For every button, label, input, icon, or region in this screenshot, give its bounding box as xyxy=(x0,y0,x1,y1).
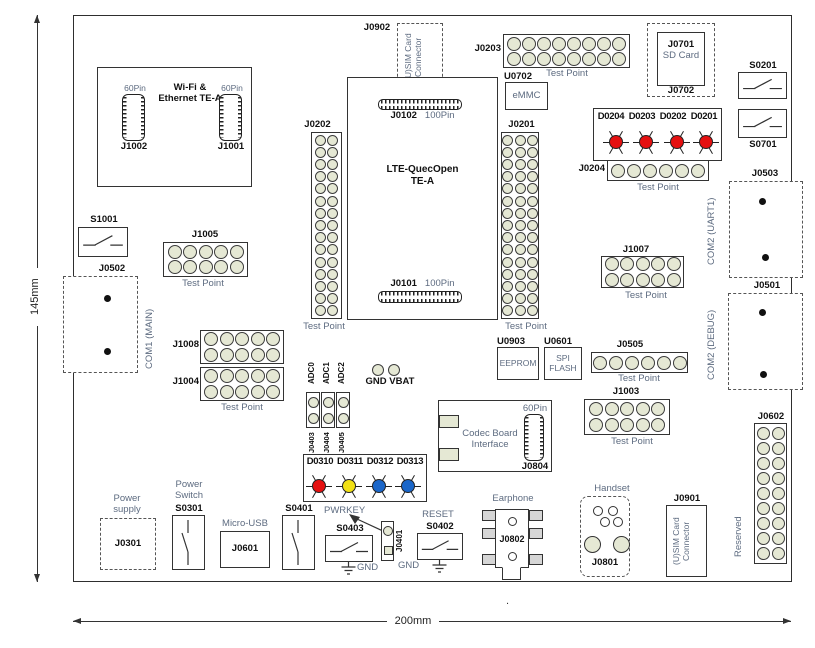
led-d0313 xyxy=(396,474,420,498)
pin-pad xyxy=(315,281,326,292)
spi-flash-name: SPI FLASH xyxy=(549,354,576,374)
pin-pad xyxy=(673,356,687,370)
label-j0702: J0702 xyxy=(657,86,705,97)
handset-hole xyxy=(608,506,618,516)
pin-pad xyxy=(651,418,665,432)
pin-pad xyxy=(515,257,526,268)
label-j0102: J0102 xyxy=(390,111,416,122)
pin-pad xyxy=(168,245,182,259)
pin-pad xyxy=(502,281,513,292)
label-adc0: ADC0 xyxy=(307,356,319,391)
label-j0503: J0503 xyxy=(743,169,787,180)
pin-pad xyxy=(757,502,770,515)
earphone-name: Earphone xyxy=(486,494,540,505)
pin-pad xyxy=(527,135,538,146)
led-d0203 xyxy=(634,130,658,154)
pin-pad xyxy=(667,257,681,271)
switch-symbol xyxy=(418,534,462,559)
com2-uart-name: COM2 (UART1) xyxy=(707,185,721,278)
led-d0204 xyxy=(604,130,628,154)
earphone-pad xyxy=(529,554,543,565)
label-j0202: J0202 xyxy=(295,120,340,131)
label-j0404: J0404 xyxy=(323,430,333,456)
pin-pad xyxy=(220,332,234,346)
handset-pad-left xyxy=(584,536,601,553)
dim-height-arrow-bottom xyxy=(34,574,40,582)
pin-pad xyxy=(567,37,581,51)
sd-card-name: SD Card xyxy=(658,51,704,62)
pin-pad xyxy=(183,260,197,274)
label-j0601: J0601 xyxy=(232,544,258,555)
codec-title: Codec Board Interface xyxy=(457,429,523,451)
label-j0505: J0505 xyxy=(608,340,652,351)
pin-pad xyxy=(502,183,513,194)
com2-uart-pin-top xyxy=(759,198,766,205)
switch-s0301 xyxy=(172,515,205,570)
header-j1008 xyxy=(200,330,284,364)
pin-pad xyxy=(515,208,526,219)
connector-j0101-icon xyxy=(378,291,462,303)
pin-pad xyxy=(507,37,521,51)
connector-j0102-icon xyxy=(378,99,462,110)
pin-pad xyxy=(527,159,538,170)
pin-pad xyxy=(204,348,218,362)
status-led-box: D0310 D0311 D0312 D0313 xyxy=(303,454,427,502)
pin-pad xyxy=(230,260,244,274)
pin-pad xyxy=(235,369,249,383)
connector-j0804-icon xyxy=(524,414,544,461)
pin-pad xyxy=(168,260,182,274)
pin-pad xyxy=(502,159,513,170)
label-d0313: D0313 xyxy=(395,457,425,468)
label-s0701: S0701 xyxy=(739,140,787,151)
label-pin100-bottom: 100Pin xyxy=(425,279,455,290)
pin-pad xyxy=(502,220,513,231)
pin-pad xyxy=(315,257,326,268)
pin-pad xyxy=(589,402,603,416)
switch-s1001 xyxy=(78,227,128,257)
pin-pad xyxy=(502,196,513,207)
header-j1007 xyxy=(601,256,684,288)
pin-pad xyxy=(502,135,513,146)
com1-pin-bottom xyxy=(104,348,111,355)
switch-s0401 xyxy=(282,515,315,570)
dim-width-label: 200mm xyxy=(387,613,439,629)
caption-j0202: Test Point xyxy=(293,322,355,333)
connector-j0401 xyxy=(381,521,394,561)
pin-pad xyxy=(327,220,338,231)
pin-pad xyxy=(627,164,641,178)
label-d0312: D0312 xyxy=(365,457,395,468)
gnd-vbat-label: GND VBAT xyxy=(361,377,419,388)
usim-bottom-text: (U)SIM Card Connector xyxy=(672,509,702,573)
pin-pad xyxy=(757,472,770,485)
pin-pad xyxy=(515,281,526,292)
pin-pad xyxy=(659,164,673,178)
connector-j1002-icon xyxy=(122,94,145,141)
label-s0403: S0403 xyxy=(328,524,372,535)
pin-pad xyxy=(204,385,218,399)
pin-pad xyxy=(204,369,218,383)
label-j0401: J0401 xyxy=(395,527,405,555)
label-d0204: D0204 xyxy=(596,112,627,123)
header-j0505 xyxy=(591,352,688,373)
micro-usb-name: Micro-USB xyxy=(216,519,274,530)
caption-j1003: Test Point xyxy=(601,437,663,448)
pin-pad xyxy=(327,196,338,207)
led-d0202 xyxy=(665,130,689,154)
pin-pad xyxy=(657,356,671,370)
pin-pad xyxy=(620,402,634,416)
switch-symbol xyxy=(79,228,127,256)
pin-pad xyxy=(522,52,536,66)
pin-pad xyxy=(315,220,326,231)
pin-pad xyxy=(204,332,218,346)
label-j0403: J0403 xyxy=(308,430,318,456)
pin-pad xyxy=(251,348,265,362)
earphone-pad xyxy=(482,510,496,521)
led-d0312 xyxy=(367,474,391,498)
pin-pad xyxy=(315,171,326,182)
label-j0901: J0901 xyxy=(666,494,708,505)
dim-width-arrow-right xyxy=(783,618,791,624)
pin-pad xyxy=(327,281,338,292)
label-adc2: ADC2 xyxy=(337,356,349,391)
pin-pad xyxy=(266,348,280,362)
pin-pad xyxy=(235,385,249,399)
header-j0204 xyxy=(607,160,709,181)
pin-pad xyxy=(527,244,538,255)
codec-tab-top xyxy=(439,415,459,428)
header-j0405 xyxy=(336,392,350,428)
label-j0405: J0405 xyxy=(338,430,348,456)
com2-debug-name: COM2 (DEBUG) xyxy=(707,298,721,391)
label-d0202: D0202 xyxy=(658,112,689,123)
earphone-stem xyxy=(502,567,521,580)
pin-pad xyxy=(327,147,338,158)
emmc-box: eMMC xyxy=(505,82,548,110)
pin-pad xyxy=(502,293,513,304)
pin-pad xyxy=(552,37,566,51)
pin-pad xyxy=(230,245,244,259)
pin-pad xyxy=(757,487,770,500)
label-s0402: S0402 xyxy=(418,522,462,533)
pin-pad xyxy=(515,305,526,316)
header-j1003 xyxy=(584,399,670,435)
switch-symbol xyxy=(173,516,204,569)
pin-pad xyxy=(315,269,326,280)
pin-pad xyxy=(515,244,526,255)
pin-pad xyxy=(315,147,326,158)
label-j1008: J1008 xyxy=(165,340,199,351)
led-d0310 xyxy=(307,474,331,498)
pin-pad xyxy=(636,273,650,287)
pin-pad xyxy=(251,332,265,346)
label-j0201: J0201 xyxy=(499,120,544,131)
pin-pad xyxy=(636,418,650,432)
pin-pad xyxy=(612,52,626,66)
reset-name: RESET xyxy=(413,510,463,521)
handset-hole xyxy=(613,517,623,527)
switch-symbol xyxy=(739,73,786,98)
led-d0201 xyxy=(694,130,718,154)
label-pin60-right: 60Pin xyxy=(215,84,249,94)
pin-pad xyxy=(338,413,349,424)
pin-pad xyxy=(757,442,770,455)
pin-pad xyxy=(502,269,513,280)
pin-pad xyxy=(691,164,705,178)
pin-pad xyxy=(327,208,338,219)
pin-pad xyxy=(266,369,280,383)
pin-pad xyxy=(235,332,249,346)
pin-pad xyxy=(636,402,650,416)
label-j0101: J0101 xyxy=(390,279,416,290)
pin-pad xyxy=(757,532,770,545)
pin-pad xyxy=(338,397,349,408)
spi-flash-box: SPI FLASH xyxy=(544,347,582,380)
lte-bottom-conn-row: J0101 100Pin xyxy=(347,279,498,290)
pin-pad xyxy=(199,245,213,259)
com1-name: COM1 (MAIN) xyxy=(145,291,159,386)
reserved-label: Reserved xyxy=(734,506,748,568)
pin-pad xyxy=(323,397,334,408)
pin-pad xyxy=(527,208,538,219)
pin-pad xyxy=(772,472,785,485)
pin-pad xyxy=(327,293,338,304)
caption-j1004: Test Point xyxy=(211,403,273,414)
pin-pad xyxy=(527,196,538,207)
pin-pad xyxy=(567,52,581,66)
pin-pad xyxy=(593,356,607,370)
caption-j0204: Test Point xyxy=(627,183,689,194)
codec-tab-bottom xyxy=(439,448,459,461)
pin-pad xyxy=(502,232,513,243)
gnd-vbat-pads xyxy=(371,363,401,376)
header-j0602 xyxy=(754,423,787,564)
caption-j1005: Test Point xyxy=(172,279,234,290)
power-supply-box: J0301 xyxy=(100,518,156,570)
pin-pad xyxy=(372,364,384,376)
pin-pad xyxy=(315,196,326,207)
pin-pad xyxy=(772,427,785,440)
handset-box: J0801 xyxy=(580,496,630,577)
pin-pad xyxy=(515,159,526,170)
label-s1001: S1001 xyxy=(82,215,126,226)
board-diagram: 145mm 200mm . Wi-Fi & Ethernet TE-A 60Pi… xyxy=(0,0,815,648)
lte-module-title: LTE-QuecOpen TE-A xyxy=(347,164,498,187)
earphone-pad xyxy=(482,528,496,539)
pin-pad xyxy=(183,245,197,259)
pin-pad xyxy=(772,442,785,455)
label-pin60-left: 60Pin xyxy=(118,84,152,94)
pin-pad xyxy=(527,220,538,231)
gnd-label-1: GND xyxy=(357,563,385,574)
micro-usb-box: J0601 xyxy=(220,531,270,568)
pin-pad xyxy=(327,257,338,268)
pin-pad xyxy=(199,260,213,274)
label-d0201: D0201 xyxy=(689,112,720,123)
pin-pad xyxy=(220,369,234,383)
pin-pad xyxy=(609,356,623,370)
pin-pad xyxy=(772,517,785,530)
emmc-name: eMMC xyxy=(513,91,541,102)
caption-j0505: Test Point xyxy=(608,374,670,385)
pin-pad xyxy=(515,135,526,146)
switch-symbol xyxy=(283,516,314,569)
eeprom-name: EEPROM xyxy=(500,359,537,369)
pin-pad xyxy=(527,281,538,292)
pin-pad xyxy=(605,402,619,416)
pin-pad xyxy=(620,418,634,432)
label-j1003: J1003 xyxy=(604,387,648,398)
connector-j1001-icon xyxy=(219,94,242,141)
label-j0501: J0501 xyxy=(745,281,789,292)
dim-height-arrow-top xyxy=(34,15,40,23)
sd-card-box: J0701 SD Card xyxy=(657,32,705,86)
pin-pad xyxy=(315,159,326,170)
earphone-pad xyxy=(529,510,543,521)
pin-pad xyxy=(589,418,603,432)
label-j0804: J0804 xyxy=(520,462,550,473)
pin-pad xyxy=(527,183,538,194)
label-s0201: S0201 xyxy=(739,61,787,72)
switch-symbol xyxy=(326,536,372,561)
pin-pad xyxy=(235,348,249,362)
header-j0202 xyxy=(311,132,342,319)
earphone-hole-top xyxy=(508,517,517,526)
pin-pad xyxy=(757,457,770,470)
label-j1007: J1007 xyxy=(614,245,658,256)
power-switch-name: Power Switch xyxy=(164,480,214,502)
caption-j1007: Test Point xyxy=(615,291,677,302)
header-j0201 xyxy=(501,132,539,319)
earphone-hole-bottom xyxy=(508,552,517,561)
pin-pad xyxy=(597,37,611,51)
pin-pad xyxy=(327,135,338,146)
label-j1004: J1004 xyxy=(165,377,199,388)
pin-pad xyxy=(625,356,639,370)
pin-pad xyxy=(515,147,526,158)
pin-pad xyxy=(388,364,400,376)
pin-pad xyxy=(522,37,536,51)
pin-pad xyxy=(537,37,551,51)
pin-pad xyxy=(327,244,338,255)
pin-pad xyxy=(527,269,538,280)
j0401-pin-square xyxy=(384,546,393,555)
pin-pad xyxy=(315,293,326,304)
label-j0902: J0902 xyxy=(360,23,394,34)
pin-pad xyxy=(220,348,234,362)
handset-name: Handset xyxy=(584,484,640,495)
pin-pad xyxy=(327,232,338,243)
dim-width-arrow-left xyxy=(73,618,81,624)
pin-pad xyxy=(515,220,526,231)
caption-j0201: Test Point xyxy=(495,322,557,333)
pin-pad xyxy=(323,413,334,424)
pin-pad xyxy=(251,385,265,399)
j0401-pin-round xyxy=(383,526,393,536)
label-s0301: S0301 xyxy=(167,504,211,515)
header-j1005 xyxy=(163,242,248,277)
label-j1001: J1001 xyxy=(214,142,248,153)
handset-hole xyxy=(593,506,603,516)
pin-pad xyxy=(667,273,681,287)
label-j1005: J1005 xyxy=(183,230,227,241)
pin-pad xyxy=(772,547,785,560)
switch-symbol xyxy=(739,110,786,137)
label-j0802: J0802 xyxy=(495,534,529,544)
pin-pad xyxy=(266,385,280,399)
pin-pad xyxy=(502,147,513,158)
pin-pad xyxy=(266,332,280,346)
pin-pad xyxy=(327,183,338,194)
pin-pad xyxy=(552,52,566,66)
pin-pad xyxy=(315,135,326,146)
pin-pad xyxy=(582,37,596,51)
pin-pad xyxy=(327,269,338,280)
pin-pad xyxy=(315,244,326,255)
label-adc1: ADC1 xyxy=(322,356,334,391)
pin-pad xyxy=(641,356,655,370)
pin-pad xyxy=(582,52,596,66)
label-d0311: D0311 xyxy=(335,457,365,468)
power-supply-name: Power supply xyxy=(98,494,156,516)
pin-pad xyxy=(772,502,785,515)
earphone-pad xyxy=(482,554,496,565)
pin-pad xyxy=(315,208,326,219)
pin-pad xyxy=(527,293,538,304)
lte-top-conn-row: J0102 100Pin xyxy=(347,111,498,122)
label-j0602: J0602 xyxy=(751,412,791,423)
pin-pad xyxy=(651,402,665,416)
label-j0203: J0203 xyxy=(468,44,501,55)
network-led-box: D0204 D0203 D0202 D0201 xyxy=(593,108,722,161)
com1-pin-top xyxy=(104,295,111,302)
pin-pad xyxy=(527,232,538,243)
label-j0801: J0801 xyxy=(581,558,629,569)
pin-pad xyxy=(502,257,513,268)
pin-pad xyxy=(605,273,619,287)
pin-pad xyxy=(527,305,538,316)
dim-height-label: 145mm xyxy=(29,268,46,326)
com2-debug-pin-top xyxy=(759,309,766,316)
pin-pad xyxy=(327,159,338,170)
pin-pad xyxy=(315,305,326,316)
pin-pad xyxy=(757,517,770,530)
label-j0301: J0301 xyxy=(115,539,141,550)
pin-pad xyxy=(611,164,625,178)
pin-pad xyxy=(527,257,538,268)
ground-symbol-s0402 xyxy=(430,559,449,574)
com1-connector-box xyxy=(63,276,138,373)
pin-pad xyxy=(502,244,513,255)
pin-pad xyxy=(507,52,521,66)
com2-debug-pin-bottom xyxy=(760,371,767,378)
pin-pad xyxy=(620,273,634,287)
handset-pad-right xyxy=(613,536,630,553)
label-pin100-top: 100Pin xyxy=(425,111,455,122)
pin-pad xyxy=(327,305,338,316)
pin-pad xyxy=(515,196,526,207)
header-j0404 xyxy=(321,392,335,428)
pin-pad xyxy=(537,52,551,66)
switch-s0201 xyxy=(738,72,787,99)
pin-pad xyxy=(636,257,650,271)
stray-mark: . xyxy=(506,595,514,607)
pin-pad xyxy=(620,257,634,271)
pin-pad xyxy=(515,171,526,182)
pin-pad xyxy=(757,427,770,440)
